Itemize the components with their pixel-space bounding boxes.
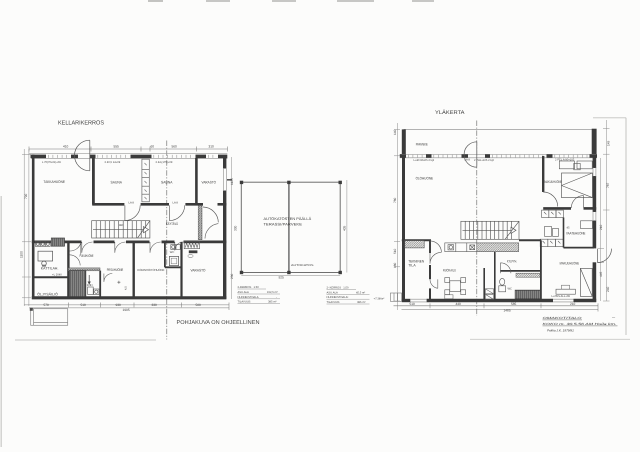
- svg-text:Pekka J.K. 1979/81: Pekka J.K. 1979/81: [547, 329, 574, 333]
- svg-text:PARVEKE: PARVEKE: [416, 143, 428, 147]
- svg-text:980: 980: [119, 224, 124, 227]
- svg-text:510: 510: [410, 302, 416, 306]
- svg-text:385 m³: 385 m³: [268, 301, 276, 304]
- svg-text:MAKUUHUONE: MAKUUHUONE: [545, 180, 563, 184]
- svg-text:AUTOKATOSTEN PÄÄLLÄ: AUTOKATOSTEN PÄÄLLÄ: [264, 216, 312, 221]
- svg-text:L 70(70x21)+09: L 70(70x21)+09: [42, 161, 61, 164]
- svg-text:780: 780: [393, 197, 397, 203]
- svg-text:152,5 m²: 152,5 m²: [267, 291, 278, 294]
- svg-text:925: 925: [279, 276, 285, 280]
- svg-text:TILAVUUS: TILAVUUS: [238, 301, 251, 304]
- svg-text:1100: 1100: [20, 251, 24, 258]
- svg-text:1485: 1485: [504, 309, 511, 313]
- svg-text:+7.38/m²: +7.38/m²: [374, 298, 385, 301]
- svg-text:180: 180: [393, 262, 397, 268]
- svg-text:KÄYTÄVÄ: KÄYTÄVÄ: [166, 221, 178, 226]
- svg-text:KOKO m. 30.5.56 AM Huila: KOKO m. 30.5.56 AM Huila km.: [543, 322, 617, 326]
- svg-text:MAKUUHUONE: MAKUUHUONE: [560, 262, 580, 266]
- svg-text:210: 210: [599, 224, 603, 230]
- svg-text:POHJAKUVA ON OHJEELLINEN: POHJAKUVA ON OHJEELLINEN: [177, 320, 260, 326]
- svg-text:2- KERROS 1:50: 2- KERROS 1:50: [327, 286, 349, 289]
- svg-text:500: 500: [196, 303, 202, 307]
- svg-text:330: 330: [152, 303, 158, 307]
- svg-text:510: 510: [393, 248, 397, 254]
- svg-text:45,5 m²: 45,5 m²: [356, 291, 365, 294]
- svg-text:KELLARIKERROS: KELLARIKERROS: [58, 120, 104, 127]
- svg-text:-: -: [276, 296, 277, 299]
- svg-text:410: 410: [63, 145, 69, 149]
- svg-text:OLOHUONE: OLOHUONE: [416, 177, 434, 181]
- svg-text:LA 8: LA 8: [129, 201, 135, 204]
- svg-text:585: 585: [511, 302, 517, 306]
- svg-text:L+80 90x05 2 kpl: L+80 90x05 2 kpl: [414, 159, 435, 162]
- svg-text:405: 405: [342, 225, 346, 231]
- svg-text:WC: WC: [170, 251, 175, 254]
- svg-text:WC: WC: [508, 288, 513, 291]
- svg-text:445: 445: [599, 271, 603, 277]
- svg-text:KHH: KHH: [87, 284, 93, 287]
- svg-text:L+PES ALL+09: L+PES ALL+09: [552, 295, 571, 298]
- svg-text:ÖLJYSÄILIÖ: ÖLJYSÄILIÖ: [37, 292, 58, 297]
- svg-text:2 44,(175)+09: 2 44,(175)+09: [156, 161, 173, 164]
- svg-text:510: 510: [81, 303, 87, 307]
- svg-text:KATTILAH.: KATTILAH.: [41, 266, 59, 270]
- svg-text:HUONEISTOALA¹: HUONEISTOALA¹: [327, 296, 349, 299]
- svg-text:1995: 1995: [123, 308, 130, 312]
- svg-text:YLÄKERTA: YLÄKERTA: [435, 109, 465, 116]
- svg-text:60: 60: [151, 145, 155, 149]
- svg-text:790: 790: [24, 193, 28, 199]
- svg-text:930: 930: [116, 303, 122, 307]
- svg-text:140: 140: [393, 129, 397, 135]
- svg-text:45: 45: [567, 227, 570, 230]
- svg-text:TAKKAHUONE: TAKKAHUONE: [44, 180, 66, 184]
- svg-text:149: 149: [606, 140, 610, 146]
- svg-text:555: 555: [114, 145, 120, 149]
- svg-text:LA 8: LA 8: [173, 201, 179, 204]
- svg-text:RUOKAILU: RUOKAILU: [443, 269, 456, 273]
- svg-text:4,5: 4,5: [125, 286, 128, 290]
- svg-text:TILA: TILA: [408, 264, 416, 268]
- svg-text:240: 240: [606, 286, 610, 292]
- svg-text:—: —: [611, 315, 616, 319]
- svg-text:HUONEISTOALA: HUONEISTOALA: [238, 296, 259, 299]
- svg-text:+L 2040: +L 2040: [52, 274, 62, 277]
- svg-text:KYLPYH.: KYLPYH.: [507, 259, 517, 263]
- svg-text:386 m³: 386 m³: [357, 301, 365, 304]
- svg-text:1125: 1125: [230, 178, 234, 185]
- svg-text:230: 230: [230, 273, 234, 279]
- svg-text:330: 330: [233, 225, 237, 231]
- svg-text:VARASTO: VARASTO: [191, 268, 206, 272]
- svg-text:ASU.ALA: ASU.ALA: [238, 291, 250, 294]
- svg-text:210: 210: [570, 302, 576, 306]
- svg-text:570: 570: [44, 303, 50, 307]
- svg-text:KODINHOITOHUONE: KODINHOITOHUONE: [137, 268, 164, 272]
- svg-text:VAATEHUONE: VAATEHUONE: [566, 232, 586, 236]
- svg-text:ASU.ALA: ASU.ALA: [327, 291, 339, 294]
- svg-text:TILAVUUS: TILAVUUS: [327, 301, 340, 304]
- svg-text:VARASTO: VARASTO: [202, 180, 217, 184]
- svg-text:560: 560: [172, 145, 178, 149]
- svg-text:787: 787: [606, 182, 610, 188]
- svg-text:SAUNA: SAUNA: [161, 181, 173, 185]
- svg-text:OMAKOTITALO: OMAKOTITALO: [543, 316, 583, 320]
- svg-text:AUTOKATOS: AUTOKATOS: [291, 264, 314, 267]
- svg-text:440: 440: [456, 302, 462, 306]
- svg-text:PESUHUONE: PESUHUONE: [107, 268, 124, 272]
- svg-text:TERASSI/PARVEKE: TERASSI/PARVEKE: [264, 223, 303, 227]
- svg-text:PUKUHUONE: PUKUHUONE: [80, 254, 94, 258]
- svg-text:SAUNA: SAUNA: [111, 181, 123, 185]
- svg-text:2-KERROS 1:50: 2-KERROS 1:50: [238, 286, 260, 289]
- svg-text:310: 310: [209, 145, 215, 149]
- svg-text:2 40,5 14+09: 2 40,5 14+09: [105, 161, 121, 164]
